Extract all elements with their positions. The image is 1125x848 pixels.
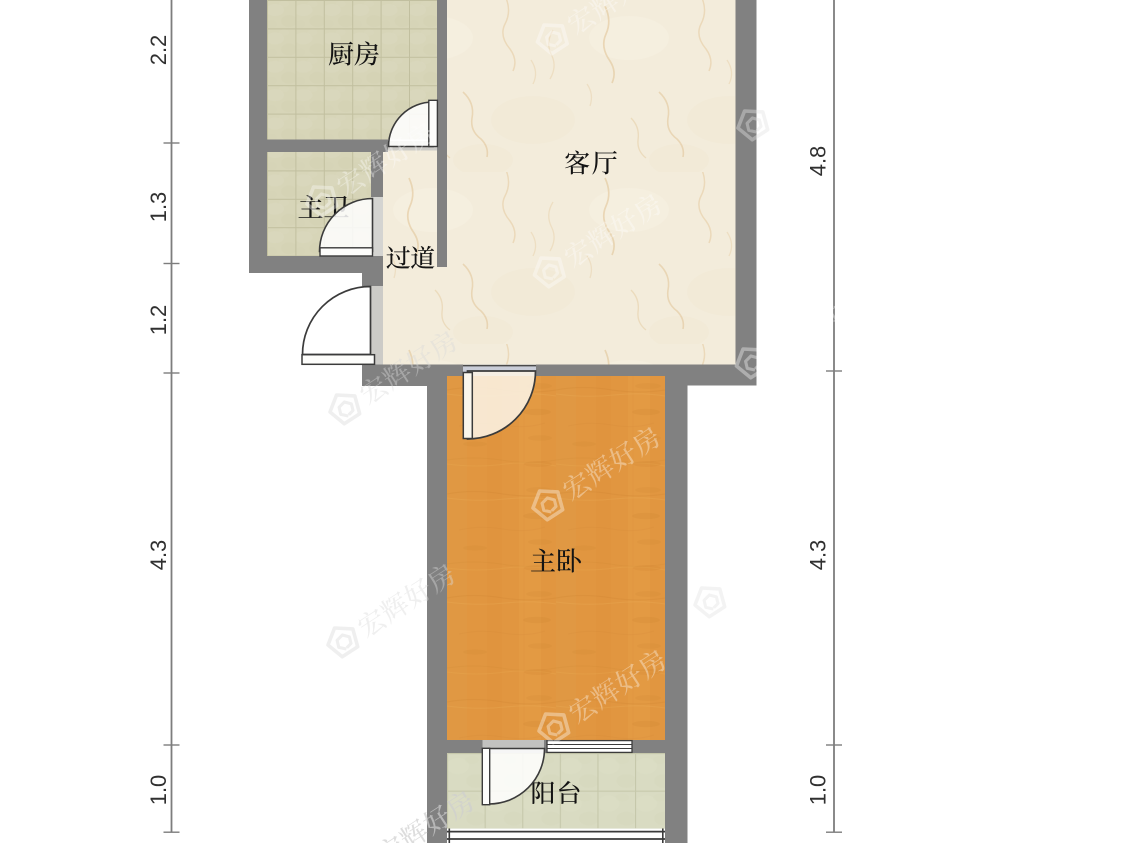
svg-text:2.2: 2.2 xyxy=(146,35,171,66)
svg-text:4.3: 4.3 xyxy=(806,540,831,571)
svg-text:4.3: 4.3 xyxy=(146,540,171,571)
svg-text:1.0: 1.0 xyxy=(146,775,171,806)
svg-text:1.0: 1.0 xyxy=(806,775,831,806)
svg-text:4.8: 4.8 xyxy=(806,146,831,177)
svg-text:1.3: 1.3 xyxy=(146,192,171,223)
svg-text:1.2: 1.2 xyxy=(146,305,171,336)
